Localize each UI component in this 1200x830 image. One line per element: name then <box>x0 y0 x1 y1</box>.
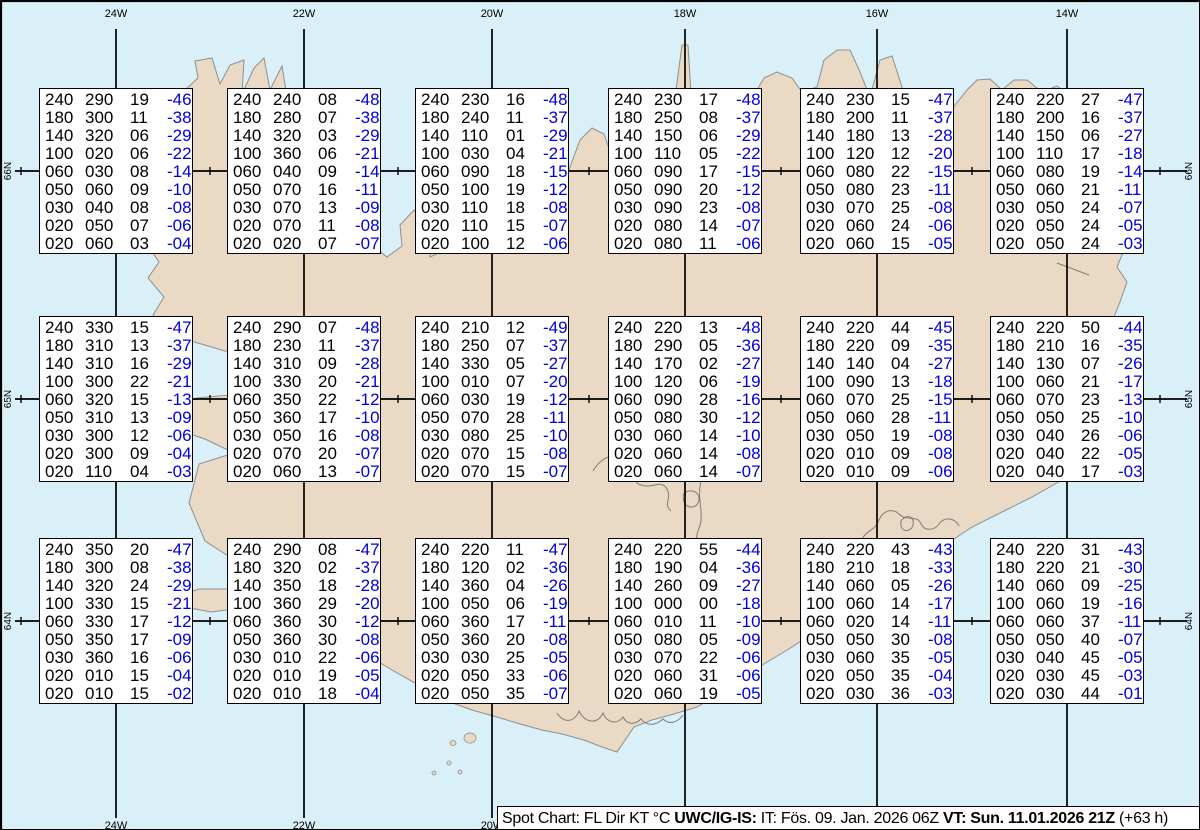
dir-value: 070 <box>654 649 699 667</box>
spot-row: 02030009-04 <box>45 445 188 463</box>
dir-value: 150 <box>1036 127 1081 145</box>
kt-value: 13 <box>318 463 355 481</box>
kt-value: 36 <box>891 685 928 703</box>
fl-value: 020 <box>996 217 1036 235</box>
spot-row: 02001009-08 <box>806 445 949 463</box>
kt-value: 07 <box>318 235 355 253</box>
spot-row: 10011017-18 <box>996 145 1139 163</box>
fl-value: 180 <box>233 337 273 355</box>
fl-value: 030 <box>233 427 273 445</box>
fl-value: 180 <box>614 337 654 355</box>
spot-row: 14013007-26 <box>996 355 1139 373</box>
dir-value: 010 <box>654 613 699 631</box>
temp-value: -48 <box>355 91 380 109</box>
fl-value: 140 <box>421 355 461 373</box>
fl-value: 060 <box>45 391 85 409</box>
fl-value: 240 <box>45 319 85 337</box>
dir-value: 050 <box>85 217 130 235</box>
fl-value: 020 <box>996 667 1036 685</box>
temp-value: -21 <box>167 373 192 391</box>
dir-value: 060 <box>846 577 891 595</box>
temp-value: -13 <box>1118 391 1143 409</box>
footer-text: Spot Chart: FL Dir KT °C UWC/IG-IS: IT: … <box>502 810 1168 828</box>
spot-row: 24029019-46 <box>45 91 188 109</box>
spot-row: 02001019-05 <box>233 667 376 685</box>
spot-row: 03004008-08 <box>45 199 188 217</box>
kt-value: 12 <box>506 319 543 337</box>
fl-value: 020 <box>806 235 846 253</box>
kt-value: 04 <box>506 577 543 595</box>
dir-value: 280 <box>273 109 318 127</box>
fl-value: 240 <box>614 91 654 109</box>
spot-row: 02004022-05 <box>996 445 1139 463</box>
fl-value: 060 <box>806 391 846 409</box>
temp-value: -20 <box>543 373 568 391</box>
temp-value: -07 <box>543 217 568 235</box>
kt-value: 19 <box>1081 595 1118 613</box>
temp-value: -06 <box>736 649 761 667</box>
spot-box-66N-14W: 24022027-4718020016-3714015006-271001101… <box>990 88 1144 254</box>
fl-value: 240 <box>996 541 1036 559</box>
dir-value: 310 <box>85 337 130 355</box>
kt-value: 14 <box>891 613 928 631</box>
fl-value: 240 <box>806 91 846 109</box>
temp-value: -03 <box>928 685 953 703</box>
spot-row: 03008025-10 <box>421 427 564 445</box>
kt-value: 35 <box>506 685 543 703</box>
dir-value: 060 <box>1036 181 1081 199</box>
kt-value: 11 <box>318 217 355 235</box>
dir-value: 060 <box>846 649 891 667</box>
spot-row: 02005033-06 <box>421 667 564 685</box>
spot-row: 02005007-06 <box>45 217 188 235</box>
kt-value: 04 <box>699 559 736 577</box>
spot-box-65N-14W: 24022050-4418021016-3514013007-261000602… <box>990 316 1144 482</box>
kt-value: 11 <box>699 613 736 631</box>
temp-value: -11 <box>928 181 951 199</box>
fl-value: 020 <box>45 667 85 685</box>
kt-value: 44 <box>891 319 928 337</box>
kt-value: 55 <box>699 541 736 559</box>
spot-row: 14015006-29 <box>614 127 757 145</box>
fl-value: 030 <box>614 649 654 667</box>
temp-value: -08 <box>736 445 761 463</box>
spot-row: 10002006-22 <box>45 145 188 163</box>
temp-value: -03 <box>1118 667 1143 685</box>
kt-value: 13 <box>891 127 928 145</box>
kt-value: 06 <box>699 373 736 391</box>
spot-row: 02005035-04 <box>806 667 949 685</box>
spot-row: 14014004-27 <box>806 355 949 373</box>
temp-value: -06 <box>736 235 761 253</box>
kt-value: 16 <box>1081 337 1118 355</box>
fl-value: 240 <box>233 541 273 559</box>
temp-value: -21 <box>167 595 192 613</box>
temp-value: -09 <box>355 199 380 217</box>
temp-value: -45 <box>928 319 953 337</box>
fl-value: 100 <box>45 145 85 163</box>
dir-value: 350 <box>85 631 130 649</box>
spot-row: 18025007-37 <box>421 337 564 355</box>
temp-value: -21 <box>355 145 380 163</box>
kt-value: 06 <box>1081 127 1118 145</box>
fl-value: 140 <box>45 577 85 595</box>
temp-value: -22 <box>736 145 761 163</box>
fl-value: 020 <box>45 235 85 253</box>
temp-value: -06 <box>928 217 953 235</box>
dir-value: 010 <box>85 685 130 703</box>
dir-value: 040 <box>1036 445 1081 463</box>
kt-value: 15 <box>130 667 167 685</box>
dir-value: 360 <box>85 649 130 667</box>
dir-value: 190 <box>654 559 699 577</box>
spot-row: 03005016-08 <box>233 427 376 445</box>
spot-row: 18021016-35 <box>996 337 1139 355</box>
dir-value: 060 <box>1036 613 1081 631</box>
spot-row: 02006015-05 <box>806 235 949 253</box>
temp-value: -15 <box>543 163 568 181</box>
dir-value: 010 <box>273 649 318 667</box>
spot-row: 06009028-16 <box>614 391 757 409</box>
kt-value: 31 <box>699 667 736 685</box>
temp-value: -20 <box>928 145 953 163</box>
temp-value: -03 <box>167 463 192 481</box>
spot-row: 18025008-37 <box>614 109 757 127</box>
dir-value: 130 <box>1036 355 1081 373</box>
kt-value: 16 <box>318 427 355 445</box>
dir-value: 230 <box>273 337 318 355</box>
kt-value: 09 <box>891 463 928 481</box>
spot-row: 14018013-28 <box>806 127 949 145</box>
spot-row: 14032024-29 <box>45 577 188 595</box>
kt-value: 26 <box>1081 427 1118 445</box>
kt-value: 17 <box>506 613 543 631</box>
temp-value: -29 <box>736 127 761 145</box>
fl-value: 240 <box>421 541 461 559</box>
footer-bar: Spot Chart: FL Dir KT °C UWC/IG-IS: IT: … <box>497 806 1200 830</box>
dir-value: 350 <box>273 391 318 409</box>
fl-value: 140 <box>421 127 461 145</box>
temp-value: -27 <box>736 355 761 373</box>
kt-value: 20 <box>506 631 543 649</box>
dir-value: 050 <box>461 667 506 685</box>
temp-value: -12 <box>355 391 380 409</box>
spot-row: 14006005-26 <box>806 577 949 595</box>
fl-value: 030 <box>233 649 273 667</box>
dir-value: 050 <box>846 667 891 685</box>
spot-row: 06003008-14 <box>45 163 188 181</box>
fl-value: 020 <box>614 217 654 235</box>
spot-row: 06009018-15 <box>421 163 564 181</box>
temp-value: -19 <box>736 373 761 391</box>
temp-value: -11 <box>1118 181 1141 199</box>
fl-value: 180 <box>614 559 654 577</box>
dir-value: 060 <box>85 235 130 253</box>
dir-value: 010 <box>273 685 318 703</box>
kt-value: 50 <box>1081 319 1118 337</box>
temp-value: -05 <box>1118 649 1143 667</box>
temp-value: -12 <box>543 181 568 199</box>
spot-row: 02003036-03 <box>806 685 949 703</box>
fl-value: 180 <box>233 559 273 577</box>
fl-value: 060 <box>996 613 1036 631</box>
kt-value: 19 <box>318 667 355 685</box>
kt-value: 21 <box>1081 373 1118 391</box>
dir-value: 170 <box>654 355 699 373</box>
dir-value: 150 <box>654 127 699 145</box>
kt-value: 08 <box>318 541 355 559</box>
spot-row: 10001007-20 <box>421 373 564 391</box>
spot-row: 10036029-20 <box>233 595 376 613</box>
temp-value: -08 <box>543 445 568 463</box>
dir-value: 110 <box>461 217 506 235</box>
kt-value: 43 <box>891 541 928 559</box>
kt-value: 17 <box>1081 463 1118 481</box>
spot-row: 02005024-05 <box>996 217 1139 235</box>
spot-row: 24023015-47 <box>806 91 949 109</box>
spot-row: 05007016-11 <box>233 181 376 199</box>
spot-row: 24022050-44 <box>996 319 1139 337</box>
temp-value: -06 <box>543 667 568 685</box>
kt-value: 05 <box>506 355 543 373</box>
temp-value: -37 <box>736 109 761 127</box>
fl-value: 140 <box>806 355 846 373</box>
temp-value: -08 <box>928 199 953 217</box>
fl-value: 140 <box>45 355 85 373</box>
fl-value: 100 <box>233 373 273 391</box>
spot-row: 03004026-06 <box>996 427 1139 445</box>
spot-row: 18022021-30 <box>996 559 1139 577</box>
spot-row: 24022011-47 <box>421 541 564 559</box>
spot-box-66N-16W: 24023015-4718020011-3714018013-281001201… <box>800 88 954 254</box>
fl-value: 050 <box>996 181 1036 199</box>
kt-value: 15 <box>130 391 167 409</box>
dir-value: 050 <box>846 427 891 445</box>
spot-row: 06036030-12 <box>233 613 376 631</box>
spot-box-66N-18W: 24023017-4818025008-3714015006-291001100… <box>608 88 762 254</box>
spot-row: 06004009-14 <box>233 163 376 181</box>
dir-value: 060 <box>85 181 130 199</box>
fl-value: 240 <box>996 319 1036 337</box>
kt-value: 07 <box>130 217 167 235</box>
spot-row: 24021012-49 <box>421 319 564 337</box>
fl-value: 050 <box>45 181 85 199</box>
temp-value: -08 <box>543 199 568 217</box>
dir-value: 220 <box>654 541 699 559</box>
temp-value: -47 <box>1118 91 1143 109</box>
dir-value: 210 <box>461 319 506 337</box>
fl-value: 060 <box>614 391 654 409</box>
temp-value: -01 <box>1118 685 1143 703</box>
footer-text-segment: Spot Chart: FL Dir KT °C <box>502 810 674 827</box>
dir-value: 060 <box>846 235 891 253</box>
fl-value: 240 <box>45 541 85 559</box>
temp-value: -26 <box>928 577 953 595</box>
temp-value: -37 <box>543 109 568 127</box>
spot-box-64N-22W: 24029008-4718032002-3714035018-281003602… <box>227 538 381 704</box>
spot-row: 02001009-06 <box>806 463 949 481</box>
dir-value: 360 <box>273 409 318 427</box>
spot-row: 24022013-48 <box>614 319 757 337</box>
temp-value: -04 <box>928 667 953 685</box>
dir-value: 220 <box>654 319 699 337</box>
dir-value: 030 <box>85 163 130 181</box>
dir-value: 110 <box>85 463 130 481</box>
temp-value: -10 <box>167 181 192 199</box>
fl-value: 030 <box>421 427 461 445</box>
fl-value: 100 <box>421 145 461 163</box>
kt-value: 15 <box>506 463 543 481</box>
fl-value: 020 <box>421 667 461 685</box>
temp-value: -48 <box>736 91 761 109</box>
temp-value: -11 <box>928 409 951 427</box>
temp-value: -47 <box>167 319 192 337</box>
fl-value: 240 <box>614 541 654 559</box>
spot-row: 03003025-05 <box>421 649 564 667</box>
dir-value: 220 <box>1036 91 1081 109</box>
dir-value: 220 <box>461 541 506 559</box>
fl-value: 050 <box>45 631 85 649</box>
spot-row: 06007023-13 <box>996 391 1139 409</box>
fl-value: 140 <box>45 127 85 145</box>
temp-value: -05 <box>928 649 953 667</box>
temp-value: -08 <box>736 199 761 217</box>
temp-value: -11 <box>543 409 566 427</box>
kt-value: 20 <box>318 373 355 391</box>
fl-value: 140 <box>806 127 846 145</box>
dir-value: 260 <box>654 577 699 595</box>
fl-value: 020 <box>45 445 85 463</box>
spot-boxes-layer: 24029019-4618030011-3814032006-291000200… <box>1 1 1200 830</box>
spot-row: 03005019-08 <box>806 427 949 445</box>
fl-value: 180 <box>996 559 1036 577</box>
spot-row: 03004045-05 <box>996 649 1139 667</box>
fl-value: 180 <box>806 109 846 127</box>
dir-value: 220 <box>1036 541 1081 559</box>
dir-value: 310 <box>273 355 318 373</box>
dir-value: 320 <box>85 127 130 145</box>
kt-value: 24 <box>1081 199 1118 217</box>
kt-value: 11 <box>699 235 736 253</box>
temp-value: -10 <box>736 427 761 445</box>
spot-row: 03011018-08 <box>421 199 564 217</box>
fl-value: 020 <box>421 685 461 703</box>
temp-value: -04 <box>167 235 192 253</box>
kt-value: 23 <box>699 199 736 217</box>
temp-value: -26 <box>543 577 568 595</box>
spot-row: 03007013-09 <box>233 199 376 217</box>
fl-value: 240 <box>421 91 461 109</box>
kt-value: 19 <box>891 427 928 445</box>
kt-value: 07 <box>318 319 355 337</box>
temp-value: -22 <box>167 145 192 163</box>
fl-value: 050 <box>806 631 846 649</box>
fl-value: 100 <box>614 145 654 163</box>
dir-value: 050 <box>273 427 318 445</box>
spot-row: 14006009-25 <box>996 577 1139 595</box>
dir-value: 090 <box>846 373 891 391</box>
temp-value: -05 <box>543 649 568 667</box>
temp-value: -09 <box>736 631 761 649</box>
kt-value: 02 <box>506 559 543 577</box>
temp-value: -36 <box>736 337 761 355</box>
spot-row: 02004017-03 <box>996 463 1139 481</box>
spot-row: 05031013-09 <box>45 409 188 427</box>
fl-value: 020 <box>806 217 846 235</box>
kt-value: 03 <box>130 235 167 253</box>
temp-value: -08 <box>543 631 568 649</box>
spot-row: 03006035-05 <box>806 649 949 667</box>
fl-value: 050 <box>421 631 461 649</box>
dir-value: 230 <box>654 91 699 109</box>
spot-row: 05006009-10 <box>45 181 188 199</box>
fl-value: 060 <box>996 163 1036 181</box>
dir-value: 120 <box>461 559 506 577</box>
temp-value: -47 <box>355 541 380 559</box>
spot-row: 10012012-20 <box>806 145 949 163</box>
temp-value: -05 <box>1118 217 1143 235</box>
fl-value: 050 <box>421 409 461 427</box>
temp-value: -43 <box>928 541 953 559</box>
dir-value: 060 <box>654 427 699 445</box>
kt-value: 06 <box>506 595 543 613</box>
dir-value: 250 <box>654 109 699 127</box>
kt-value: 13 <box>130 337 167 355</box>
kt-value: 02 <box>318 559 355 577</box>
spot-row: 05005030-08 <box>806 631 949 649</box>
spot-row: 24022044-45 <box>806 319 949 337</box>
dir-value: 080 <box>846 163 891 181</box>
kt-value: 20 <box>130 541 167 559</box>
fl-value: 020 <box>421 445 461 463</box>
temp-value: -21 <box>543 145 568 163</box>
spot-row: 10009013-18 <box>806 373 949 391</box>
spot-row: 14033005-27 <box>421 355 564 373</box>
spot-row: 10033020-21 <box>233 373 376 391</box>
dir-value: 050 <box>1036 199 1081 217</box>
kt-value: 15 <box>506 445 543 463</box>
footer-text-segment: IT: Fös. 09. Jan. 2026 06Z <box>757 810 943 827</box>
fl-value: 240 <box>421 319 461 337</box>
temp-value: -38 <box>167 109 192 127</box>
spot-row: 18023011-37 <box>233 337 376 355</box>
kt-value: 17 <box>699 163 736 181</box>
dir-value: 040 <box>1036 463 1081 481</box>
spot-box-65N-24W: 24033015-4718031013-3714031016-291003002… <box>39 316 193 482</box>
dir-value: 300 <box>85 559 130 577</box>
dir-value: 010 <box>846 445 891 463</box>
dir-value: 200 <box>1036 109 1081 127</box>
kt-value: 27 <box>1081 91 1118 109</box>
spot-row: 18012002-36 <box>421 559 564 577</box>
spot-row: 03006014-10 <box>614 427 757 445</box>
spot-row: 24022055-44 <box>614 541 757 559</box>
fl-value: 060 <box>421 613 461 631</box>
temp-value: -07 <box>355 445 380 463</box>
dir-value: 070 <box>461 445 506 463</box>
fl-value: 020 <box>233 667 273 685</box>
dir-value: 110 <box>461 127 506 145</box>
spot-row: 24029008-47 <box>233 541 376 559</box>
temp-value: -37 <box>928 109 953 127</box>
kt-value: 06 <box>130 145 167 163</box>
temp-value: -05 <box>1118 445 1143 463</box>
spot-box-66N-22W: 24024008-4818028007-3814032003-291003600… <box>227 88 381 254</box>
fl-value: 020 <box>233 685 273 703</box>
kt-value: 19 <box>699 685 736 703</box>
spot-row: 06007025-15 <box>806 391 949 409</box>
dir-value: 050 <box>1036 631 1081 649</box>
